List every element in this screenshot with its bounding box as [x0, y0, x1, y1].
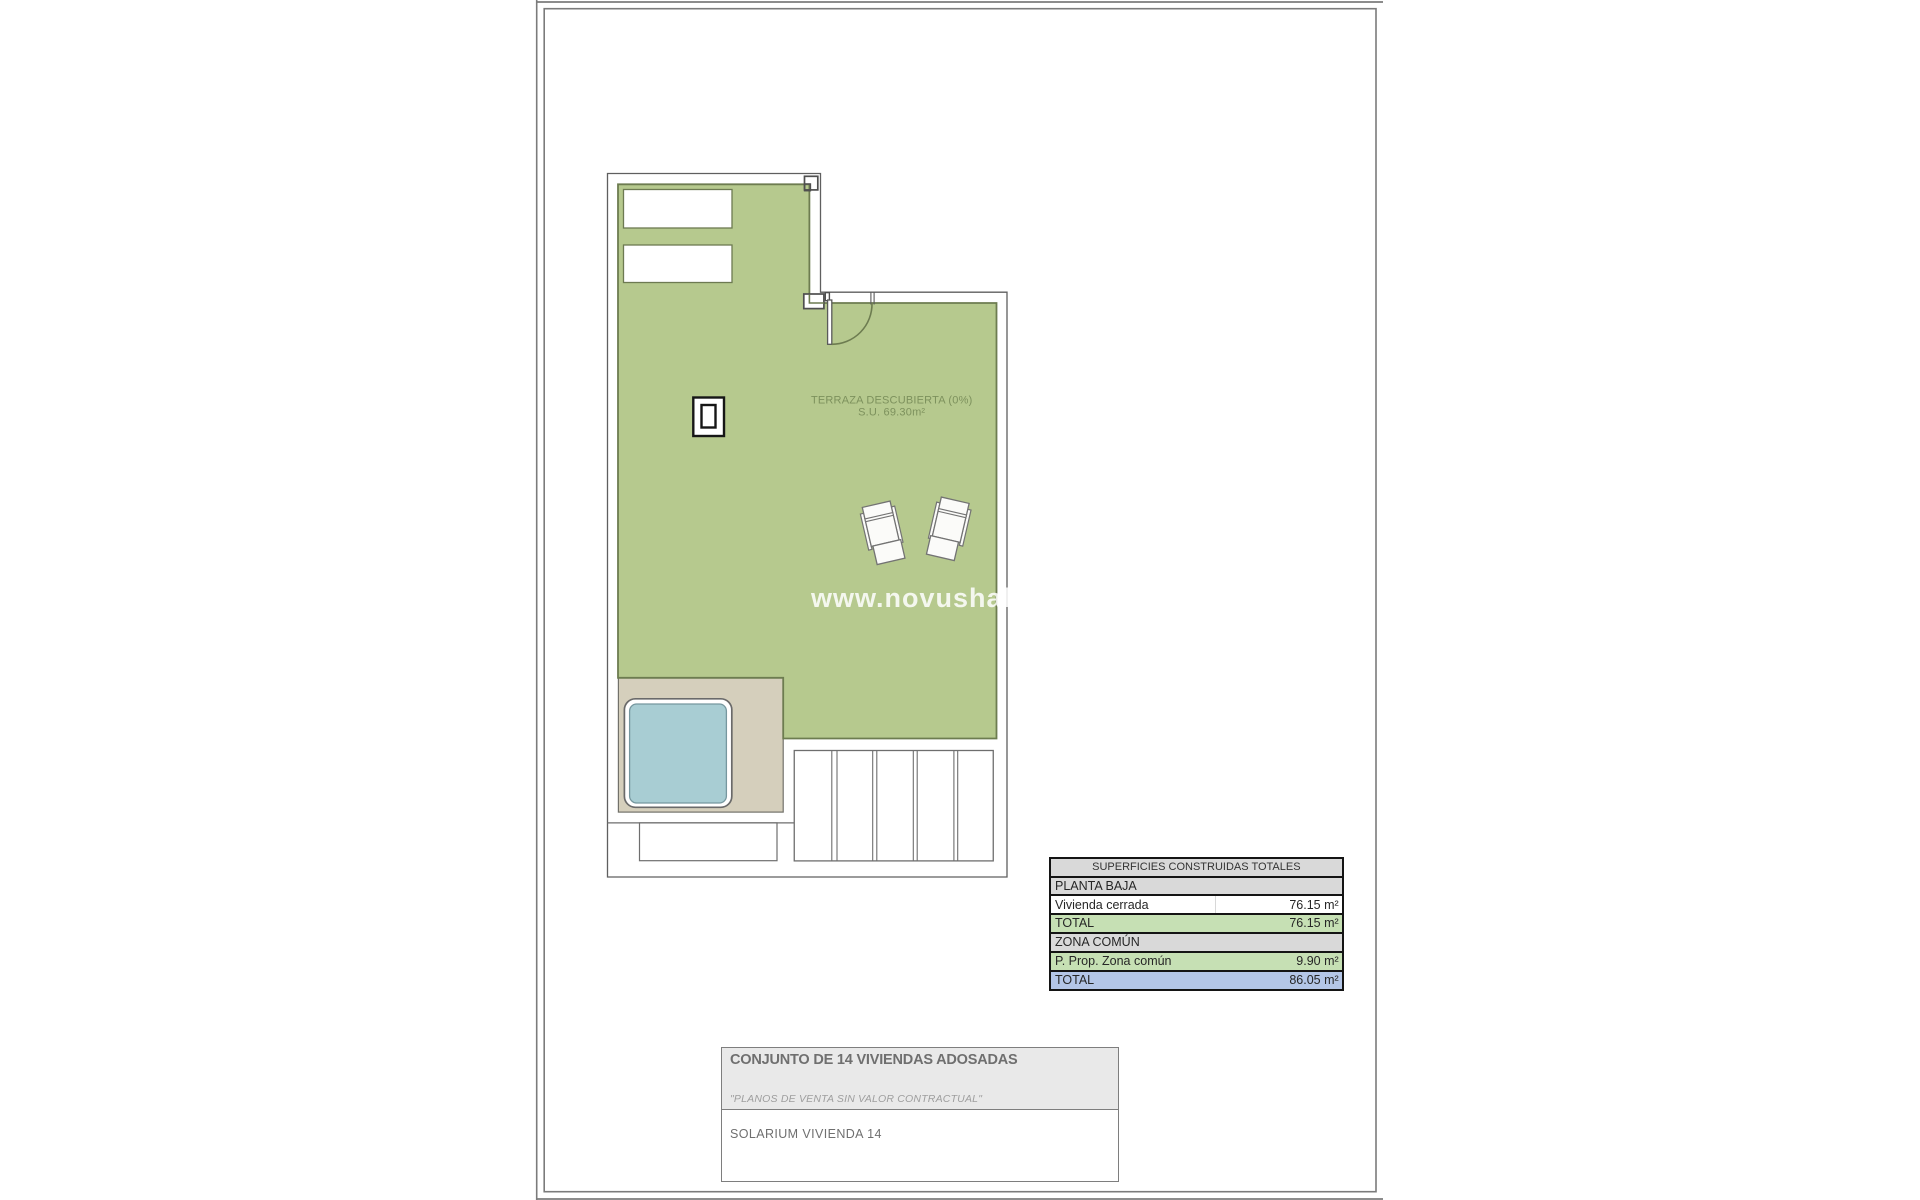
svg-text:S.U. 69.30m²: S.U. 69.30m² — [858, 406, 925, 418]
svg-text:www.novushabitat: www.novushabitat — [810, 583, 1065, 613]
svg-text:TERRAZA DESCUBIERTA (0%): TERRAZA DESCUBIERTA (0%) — [811, 395, 972, 407]
